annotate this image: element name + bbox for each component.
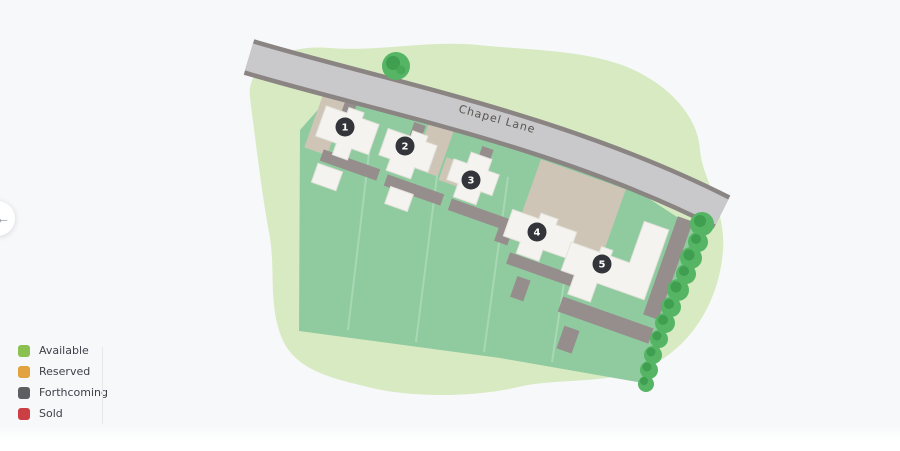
svg-text:4: 4	[534, 228, 541, 239]
legend-item-sold: Sold	[18, 407, 108, 420]
site-plan: Chapel Lane 1 2	[0, 0, 900, 451]
plot-5-marker[interactable]: 5	[593, 255, 612, 274]
plot-4-marker[interactable]: 4	[528, 223, 547, 242]
legend-divider	[102, 347, 103, 424]
legend-label: Forthcoming	[39, 386, 108, 399]
legend-item-available: Available	[18, 344, 108, 357]
available-swatch-icon	[18, 345, 30, 357]
plot-1-marker[interactable]: 1	[336, 118, 355, 137]
sold-swatch-icon	[18, 408, 30, 420]
legend-label: Reserved	[39, 365, 90, 378]
svg-text:5: 5	[599, 260, 606, 271]
plot-3-marker[interactable]: 3	[462, 171, 481, 190]
legend-label: Sold	[39, 407, 63, 420]
arrow-left-icon: ←	[0, 210, 10, 226]
reserved-swatch-icon	[18, 366, 30, 378]
legend-label: Available	[39, 344, 89, 357]
legend: Available Reserved Forthcoming Sold	[18, 344, 108, 420]
svg-text:1: 1	[342, 123, 349, 134]
plot-2-marker[interactable]: 2	[396, 137, 415, 156]
site-plan-stage: Chapel Lane 1 2	[0, 0, 900, 451]
legend-item-forthcoming: Forthcoming	[18, 386, 108, 399]
forthcoming-swatch-icon	[18, 387, 30, 399]
svg-text:3: 3	[468, 176, 475, 187]
legend-item-reserved: Reserved	[18, 365, 108, 378]
tree-icon	[382, 52, 410, 80]
svg-text:2: 2	[402, 142, 409, 153]
bottom-fade	[0, 425, 900, 451]
